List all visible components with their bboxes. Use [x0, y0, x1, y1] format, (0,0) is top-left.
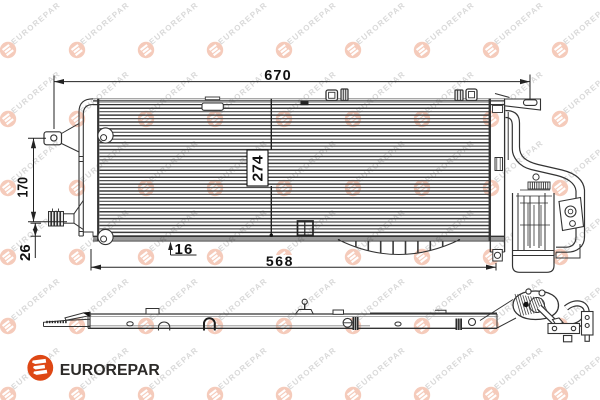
svg-text:274: 274	[250, 155, 267, 182]
svg-text:568: 568	[266, 253, 294, 269]
svg-text:670: 670	[264, 68, 292, 84]
svg-text:EUROREPAR: EUROREPAR	[60, 362, 160, 379]
svg-text:170: 170	[15, 177, 32, 198]
svg-text:16: 16	[175, 241, 194, 258]
svg-text:26: 26	[17, 244, 34, 261]
